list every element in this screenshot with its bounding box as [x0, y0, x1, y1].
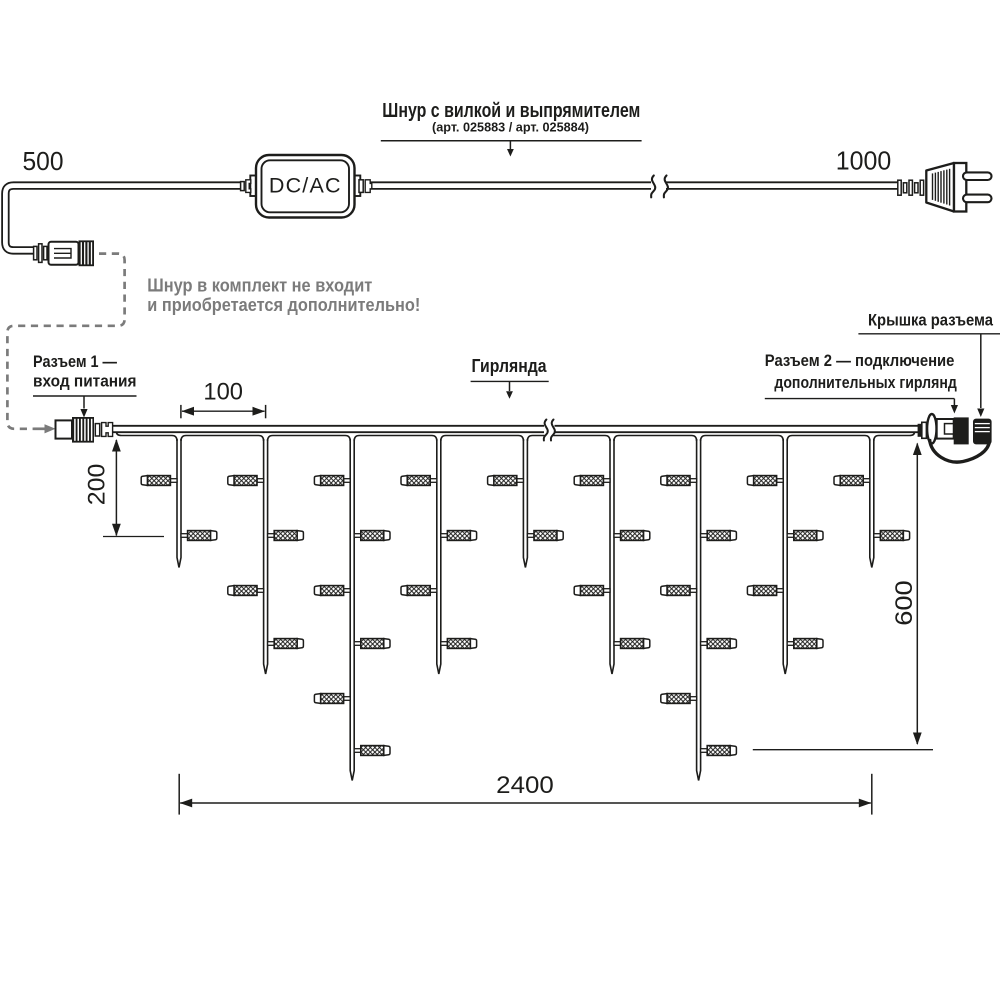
svg-text:и приобретается дополнительно!: и приобретается дополнительно! — [147, 294, 420, 315]
svg-text:Гирлянда: Гирлянда — [472, 356, 548, 376]
svg-text:вход питания: вход питания — [33, 372, 137, 391]
svg-text:200: 200 — [84, 464, 111, 506]
svg-text:1000: 1000 — [836, 146, 892, 176]
svg-text:600: 600 — [891, 580, 918, 626]
svg-text:500: 500 — [23, 146, 64, 176]
svg-text:Шнур с вилкой и выпрямителем: Шнур с вилкой и выпрямителем — [382, 100, 640, 122]
svg-text:Разъем 1 —: Разъем 1 — — [33, 352, 117, 371]
svg-text:2400: 2400 — [496, 772, 554, 799]
svg-text:(арт. 025883 / арт. 025884): (арт. 025883 / арт. 025884) — [432, 120, 589, 135]
svg-text:DC/AC: DC/AC — [269, 174, 342, 198]
svg-text:дополнительных гирлянд: дополнительных гирлянд — [774, 373, 957, 392]
svg-text:100: 100 — [203, 379, 243, 406]
svg-text:Разъем 2 — подключение: Разъем 2 — подключение — [765, 351, 955, 370]
svg-text:Шнур в комплект не входит: Шнур в комплект не входит — [147, 274, 372, 295]
svg-text:Крышка разъема: Крышка разъема — [868, 311, 994, 330]
